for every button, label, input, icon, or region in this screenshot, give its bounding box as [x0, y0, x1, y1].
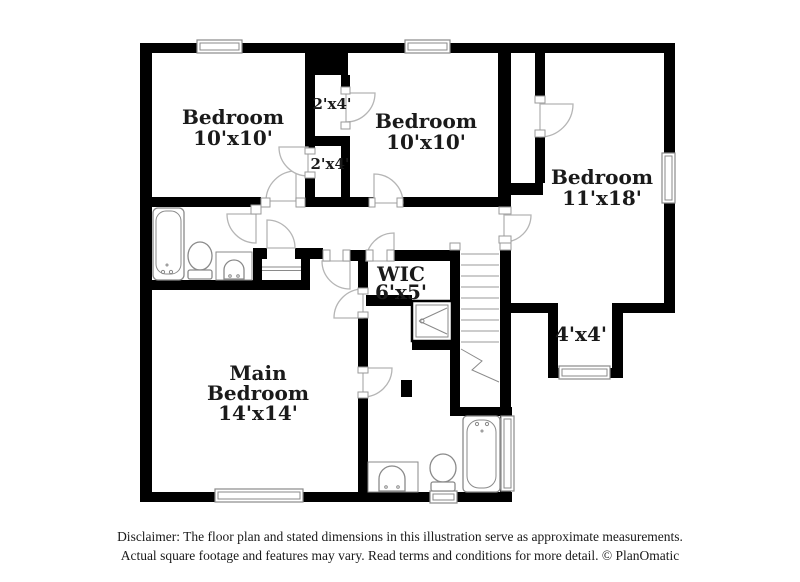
window-nook	[559, 366, 610, 379]
sink-hall-bath	[216, 252, 252, 280]
window-bedroom-top-left	[197, 40, 242, 53]
disclaimer: Disclaimer: The floor plan and stated di…	[0, 528, 800, 565]
label-nook-dims: 4'x4'	[555, 322, 607, 346]
label-closet-lower-dims: 2'x4'	[310, 155, 349, 173]
toilet-ensuite-bath	[430, 454, 456, 491]
door-closet-lower	[279, 147, 308, 176]
door-main-suite	[322, 261, 350, 289]
label-bedroom-right-dims: 11'x18'	[562, 186, 642, 210]
disclaimer-line-1: Disclaimer: The floor plan and stated di…	[0, 528, 800, 547]
label-wic-dims: 6'x5'	[375, 280, 427, 304]
door-hall-bathroom	[227, 214, 256, 243]
door-linen-closet	[267, 220, 295, 248]
linen-closet-shelf	[262, 267, 301, 271]
window-bathroom-bottom	[430, 491, 457, 503]
bathtub-ensuite-bath	[463, 416, 500, 492]
label-bedroom-top-mid-dims: 10'x10'	[386, 130, 466, 154]
sink-ensuite-bath	[368, 462, 418, 492]
label-closet-upper-dims: 2'x4'	[312, 95, 351, 113]
window-bedroom-right	[662, 153, 675, 203]
window-bathtub-side	[501, 416, 514, 491]
label-bedroom-top-left-dims: 10'x10'	[193, 126, 273, 150]
stair-break-line	[461, 349, 499, 382]
disclaimer-line-2: Actual square footage and features may v…	[0, 547, 800, 566]
toilet-hall-bath	[188, 242, 212, 279]
label-main-bedroom-dims: 14'x14'	[218, 401, 298, 425]
door-bedroom-top-left	[266, 171, 296, 201]
bathtub-hall-bath	[153, 208, 184, 280]
staircase	[461, 254, 499, 382]
floor-plan-page: Bedroom 10'x10' Bedroom 10'x10' Bedroom …	[0, 0, 800, 582]
shower-stall	[412, 301, 452, 341]
floor-plan-canvas: Bedroom 10'x10' Bedroom 10'x10' Bedroom …	[0, 0, 800, 582]
window-bedroom-top-mid	[405, 40, 450, 53]
window-main-bedroom	[215, 489, 303, 502]
